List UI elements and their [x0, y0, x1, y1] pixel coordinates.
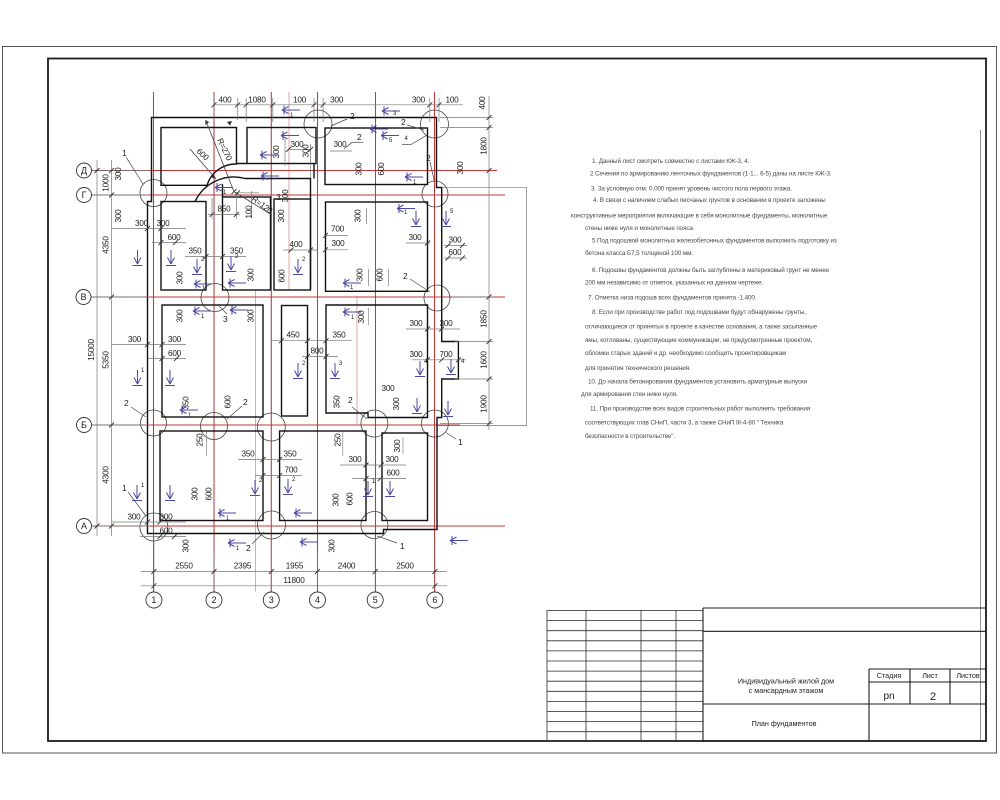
svg-text:Д: Д: [81, 166, 87, 176]
svg-text:1800: 1800: [480, 137, 489, 155]
svg-text:300: 300: [176, 271, 185, 285]
svg-text:6: 6: [432, 595, 437, 605]
svg-text:А: А: [81, 521, 87, 531]
svg-text:700: 700: [331, 225, 345, 234]
svg-text:600: 600: [346, 492, 355, 506]
svg-text:300: 300: [114, 209, 123, 223]
svg-text:3. За условную отм. 0,000 прин: 3. За условную отм. 0,000 принят уровень…: [591, 186, 792, 193]
svg-text:300: 300: [385, 455, 399, 464]
svg-text:300: 300: [356, 268, 365, 282]
svg-text:300: 300: [409, 350, 423, 359]
svg-text:7. Отметка низа подошв всех фу: 7. Отметка низа подошв всех фундаментов …: [588, 295, 757, 302]
svg-text:конструктивные мероприятия вкл: конструктивные мероприятия включающие в …: [571, 212, 828, 220]
svg-text:600: 600: [386, 469, 400, 478]
svg-text:2: 2: [401, 117, 406, 127]
svg-text:В: В: [80, 292, 86, 302]
svg-text:300: 300: [247, 309, 256, 323]
svg-text:2 Сечения по армированию лент: 2 Сечения по армированию ленточных фунда…: [590, 171, 832, 178]
svg-text:2: 2: [357, 132, 362, 142]
svg-text:300: 300: [448, 236, 462, 245]
svg-text:2: 2: [426, 153, 431, 163]
svg-text:700: 700: [439, 350, 453, 359]
svg-text:600: 600: [377, 162, 386, 176]
svg-text:Индивидуальный жилой дом: Индивидуальный жилой дом: [738, 677, 834, 686]
svg-text:​300: ​300: [135, 219, 149, 228]
svg-text:300: 300: [127, 513, 141, 522]
svg-text:400: 400: [289, 240, 303, 249]
svg-text:11800: 11800: [283, 576, 305, 585]
svg-text:300: 300: [277, 209, 286, 223]
svg-text:11. При производстве всех видо: 11. При производстве всех видов строител…: [590, 405, 810, 413]
svg-text:соответствующих глав СНиП, час: соответствующих глав СНиП, части 3, а та…: [585, 420, 784, 427]
svg-text:2400: 2400: [338, 562, 356, 571]
svg-text:300: 300: [272, 145, 281, 159]
svg-text:1: 1: [458, 437, 463, 447]
svg-text:600: 600: [159, 527, 173, 536]
svg-text:300: 300: [168, 335, 182, 344]
svg-text:6. Подошвы фундаментов должны: 6. Подошвы фундаментов должны быть заглу…: [592, 266, 830, 274]
svg-text:2: 2: [243, 397, 248, 407]
svg-text:600: 600: [376, 268, 385, 282]
svg-text:300: 300: [409, 319, 423, 328]
svg-text:для принятия технического реше: для принятия технического решения.: [585, 365, 691, 372]
svg-text:1955: 1955: [286, 562, 304, 571]
svg-text:300: 300: [456, 161, 465, 175]
svg-text:15000: 15000: [87, 338, 96, 360]
svg-text:1600: 1600: [480, 351, 489, 369]
svg-text:Стадия: Стадия: [877, 671, 902, 680]
svg-text:8. Если при производстве работ: 8. Если при производстве работ под подош…: [592, 308, 806, 316]
svg-text:300: 300: [302, 144, 311, 158]
svg-text:300: 300: [159, 513, 173, 522]
svg-text:Листов: Листов: [956, 671, 980, 680]
svg-text:бетона класса Б7,5 толщиной 10: бетона класса Б7,5 толщиной 100 мм.: [585, 249, 693, 257]
svg-text:5350: 5350: [102, 351, 111, 369]
svg-text:300: 300: [412, 96, 426, 105]
svg-text:3: 3: [223, 314, 228, 324]
svg-text:1: 1: [151, 595, 156, 605]
svg-text:350: 350: [283, 450, 297, 459]
svg-text:Б: Б: [81, 420, 87, 430]
svg-text:250: 250: [196, 433, 205, 447]
svg-text:2500: 2500: [396, 562, 414, 571]
svg-text:350: 350: [241, 450, 255, 459]
svg-text:pn: pn: [883, 691, 894, 702]
svg-text:350: 350: [188, 247, 202, 256]
svg-text:850: 850: [217, 205, 231, 214]
svg-text:300: 300: [156, 219, 170, 228]
svg-text:100: 100: [245, 205, 254, 219]
svg-text:5 Под подошвой монолитных жел: 5 Под подошвой монолитных железобетонных…: [592, 237, 837, 245]
svg-text:2: 2: [124, 398, 129, 408]
svg-text:350: 350: [333, 395, 342, 409]
svg-text:10. До начала бетонирования фу: 10. До начала бетонирования фундаментов …: [588, 378, 808, 386]
svg-text:2550: 2550: [175, 562, 193, 571]
svg-text:600: 600: [224, 395, 233, 409]
svg-text:отличающиеся от принятых в про: отличающиеся от принятых в проекте в кач…: [585, 324, 818, 331]
svg-text:1. Данный лист смотреть совмес: 1. Данный лист смотреть совместно с лист…: [592, 157, 750, 165]
svg-text:350: 350: [332, 331, 346, 340]
svg-text:2: 2: [930, 691, 936, 703]
svg-text:для армирования стен ниже нуля: для армирования стен ниже нуля.: [581, 391, 678, 398]
svg-text:200 мм независимо от отметок,: 200 мм независимо от отметок, указанных …: [585, 280, 764, 287]
svg-text:300: 300: [392, 397, 401, 411]
svg-text:400: 400: [218, 96, 232, 105]
svg-text:ямы, котлованы, существующие к: ямы, котлованы, существующие коммуникаци…: [585, 337, 813, 344]
svg-text:450: 450: [286, 331, 300, 340]
svg-text:600: 600: [168, 349, 182, 358]
svg-text:300: 300: [355, 162, 364, 176]
svg-text:1: 1: [122, 483, 127, 493]
svg-text:2: 2: [348, 395, 353, 405]
svg-text:600: 600: [167, 233, 181, 242]
svg-text:3: 3: [276, 192, 281, 202]
svg-text:2: 2: [246, 543, 251, 553]
svg-text:300: 300: [128, 335, 142, 344]
svg-text:100: 100: [445, 96, 459, 105]
svg-text:Лист: Лист: [922, 671, 938, 680]
svg-text:300: 300: [332, 493, 341, 507]
svg-text:300: 300: [381, 384, 395, 393]
svg-text:300: 300: [191, 487, 200, 501]
svg-text:400: 400: [478, 96, 487, 110]
svg-text:800: 800: [310, 347, 324, 356]
svg-text:250: 250: [334, 433, 343, 447]
svg-text:300: 300: [176, 309, 185, 323]
svg-text:300: 300: [393, 439, 402, 453]
svg-text:300: 300: [331, 239, 345, 248]
svg-text:безопасности в строительстве".: безопасности в строительстве".: [585, 432, 675, 440]
svg-text:300: 300: [439, 319, 453, 328]
svg-text:600: 600: [448, 248, 462, 257]
svg-text:300: 300: [114, 167, 123, 181]
svg-text:1: 1: [122, 148, 127, 158]
svg-text:2: 2: [350, 111, 355, 121]
svg-text:1080: 1080: [248, 96, 266, 105]
svg-text:1900: 1900: [480, 395, 489, 413]
svg-text:4300: 4300: [102, 466, 111, 484]
svg-text:100: 100: [293, 96, 307, 105]
svg-text:Г: Г: [82, 190, 87, 200]
svg-text:1850: 1850: [480, 310, 489, 328]
svg-text:3: 3: [269, 595, 274, 605]
svg-text:План фундаментов: План фундаментов: [752, 719, 817, 728]
svg-text:обломки старых зданий и др. н: обломки старых зданий и др. необходимо с…: [585, 349, 786, 357]
svg-text:600: 600: [205, 487, 214, 501]
svg-text:стены ниже нуля и монолитные п: стены ниже нуля и монолитные пояса.: [585, 225, 695, 232]
svg-text:350: 350: [182, 396, 191, 410]
svg-text:300: 300: [281, 189, 290, 203]
svg-text:300: 300: [328, 539, 337, 553]
svg-text:с мансардным этажом: с мансардным этажом: [749, 686, 824, 695]
svg-text:2: 2: [403, 271, 408, 281]
svg-text:5: 5: [373, 595, 378, 605]
svg-text:700: 700: [284, 466, 298, 475]
svg-text:2: 2: [211, 595, 216, 605]
svg-text:300: 300: [182, 539, 191, 553]
svg-text:2395: 2395: [234, 562, 252, 571]
svg-text:4350: 4350: [102, 236, 111, 254]
svg-text:1: 1: [400, 541, 405, 551]
svg-text:600: 600: [278, 269, 287, 283]
svg-text:300: 300: [348, 455, 362, 464]
svg-text:300: 300: [330, 96, 344, 105]
svg-text:300: 300: [247, 268, 256, 282]
svg-text:4: 4: [315, 595, 320, 605]
svg-text:4. В связи с наличием слабых п: 4. В связи с наличием слабых песчаных гр…: [593, 196, 826, 204]
svg-text:300: 300: [354, 209, 363, 223]
svg-text:1000: 1000: [102, 174, 111, 192]
svg-text:300: 300: [408, 233, 422, 242]
